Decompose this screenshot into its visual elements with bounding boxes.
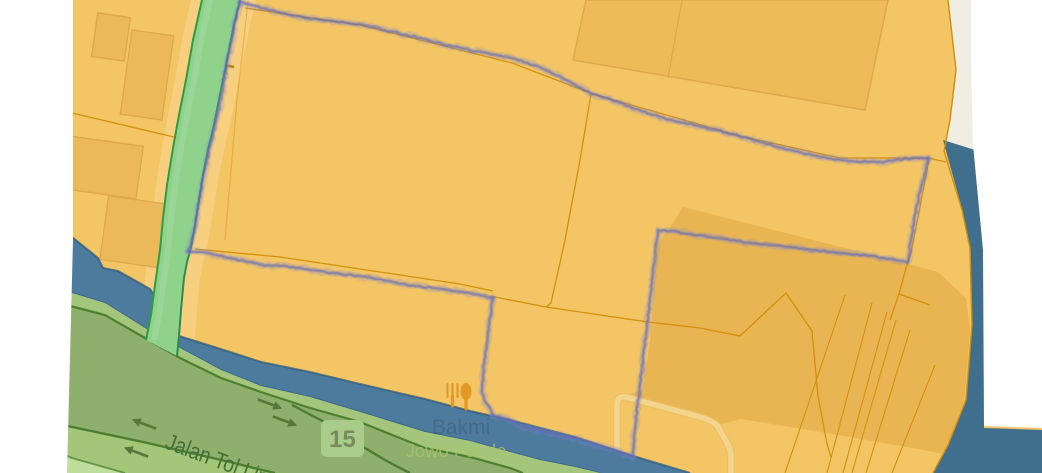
svg-text:Bakmi: Bakmi (432, 416, 490, 439)
svg-text:15: 15 (329, 426, 356, 453)
svg-text:Jowo Pakde: Jowo Pakde (406, 440, 507, 461)
